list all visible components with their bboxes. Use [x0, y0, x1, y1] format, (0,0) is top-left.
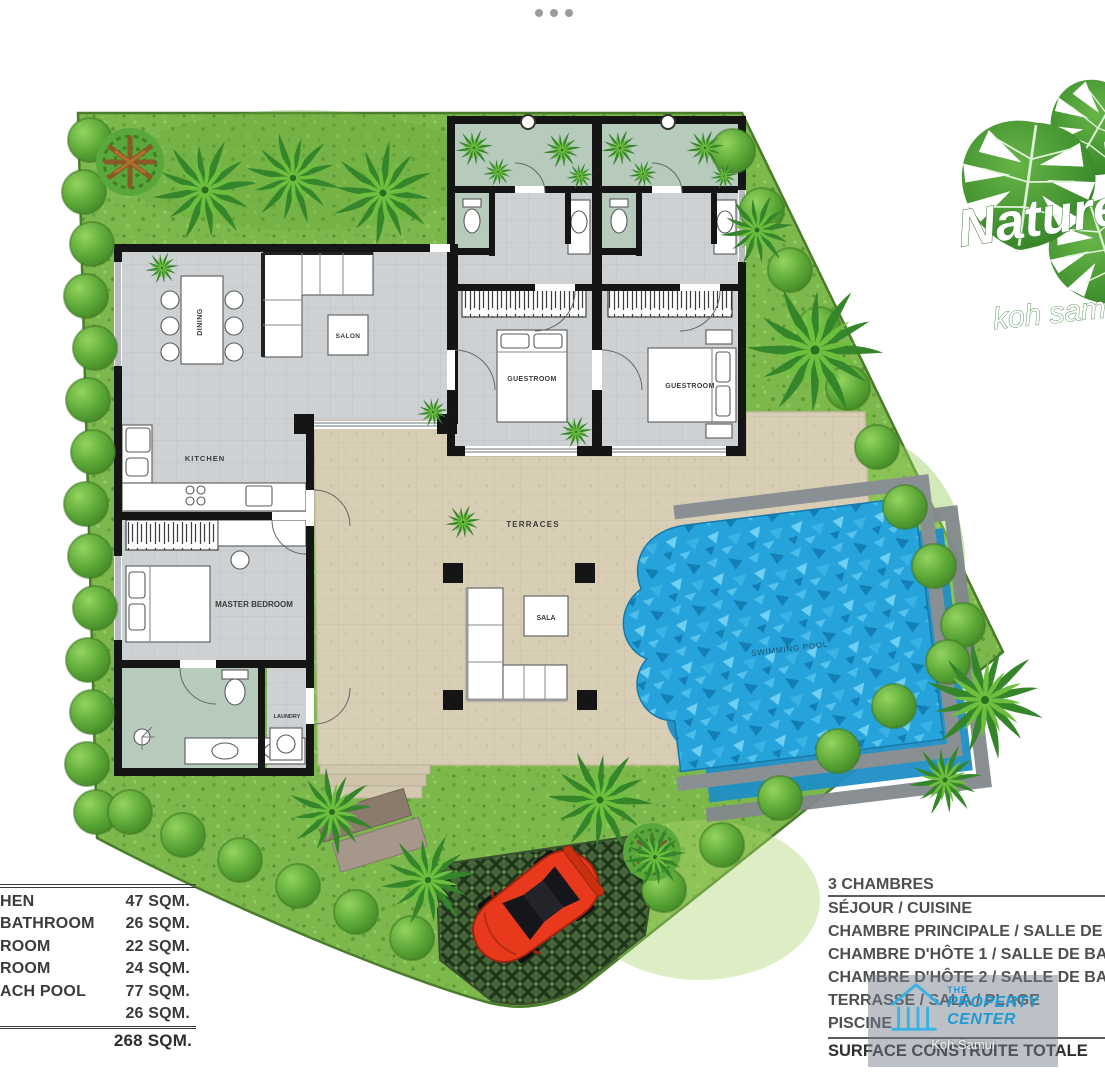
table-row: ROOM24 SQM. [0, 958, 196, 980]
legend-title: 3 CHAMBRES [828, 874, 1105, 897]
watermark-property: PROPERTY [947, 995, 1039, 1011]
guestroom2-label: GUESTROOM [665, 383, 715, 390]
master-shelf [218, 520, 306, 546]
wall-lamp [521, 115, 535, 129]
legend-item: CHAMBRE D'HÔTE 1 / SALLE DE BAIN [828, 943, 1105, 966]
table-row: ACH POOL77 SQM. [0, 981, 196, 1003]
laundry-label: LAUNDRY [274, 714, 301, 720]
guest1-wardrobe [462, 290, 586, 317]
washer [270, 728, 302, 760]
sala-label: SALA [536, 615, 555, 622]
legend-item: CHAMBRE PRINCIPALE / SALLE DE BAIN [828, 920, 1105, 943]
sala-column [443, 563, 463, 583]
master-bedroom-label: MASTER BEDROOM [215, 600, 293, 609]
kitchen-label: KITCHEN [185, 454, 225, 463]
master-wardrobe [126, 520, 218, 550]
salon-label: SALON [336, 333, 361, 340]
table-row: 26 SQM. [0, 1003, 196, 1025]
table-total: 268 SQM. [0, 1029, 196, 1053]
stool [231, 551, 249, 569]
carousel-dot[interactable] [550, 9, 558, 17]
dining-label: DINING [197, 308, 204, 336]
carousel-dots[interactable] [535, 9, 573, 17]
watermark: THE PROPERTY CENTER Koh Samui [868, 975, 1058, 1067]
listing-image-viewer: SWIMMING POOL [0, 0, 1105, 1080]
sala-column [575, 563, 595, 583]
property-center-house-icon [887, 979, 945, 1035]
guestroom1-label: GUESTROOM [507, 376, 557, 383]
area-table: HEN47 SQM. BATHROOM26 SQM. ROOM22 SQM. R… [0, 884, 196, 1053]
master-bed [126, 566, 210, 642]
terraces-label: TERRACES [506, 520, 560, 529]
sala-column [577, 690, 597, 710]
table-row: HEN47 SQM. [0, 891, 196, 913]
wall-lamp [661, 115, 675, 129]
ringed-tree [96, 128, 164, 196]
watermark-koh-samui: Koh Samui [931, 1037, 995, 1052]
carousel-dot[interactable] [535, 9, 543, 17]
logo-subtitle: koh samui [991, 289, 1105, 336]
watermark-center: CENTER [947, 1012, 1039, 1028]
nature-logo: Nature koh samui [952, 65, 1105, 336]
table-row: BATHROOM26 SQM. [0, 913, 196, 935]
table-row: ROOM22 SQM. [0, 936, 196, 958]
carousel-dot[interactable] [565, 9, 573, 17]
legend-item: SÉJOUR / CUISINE [828, 897, 1105, 920]
sala-column [443, 690, 463, 710]
